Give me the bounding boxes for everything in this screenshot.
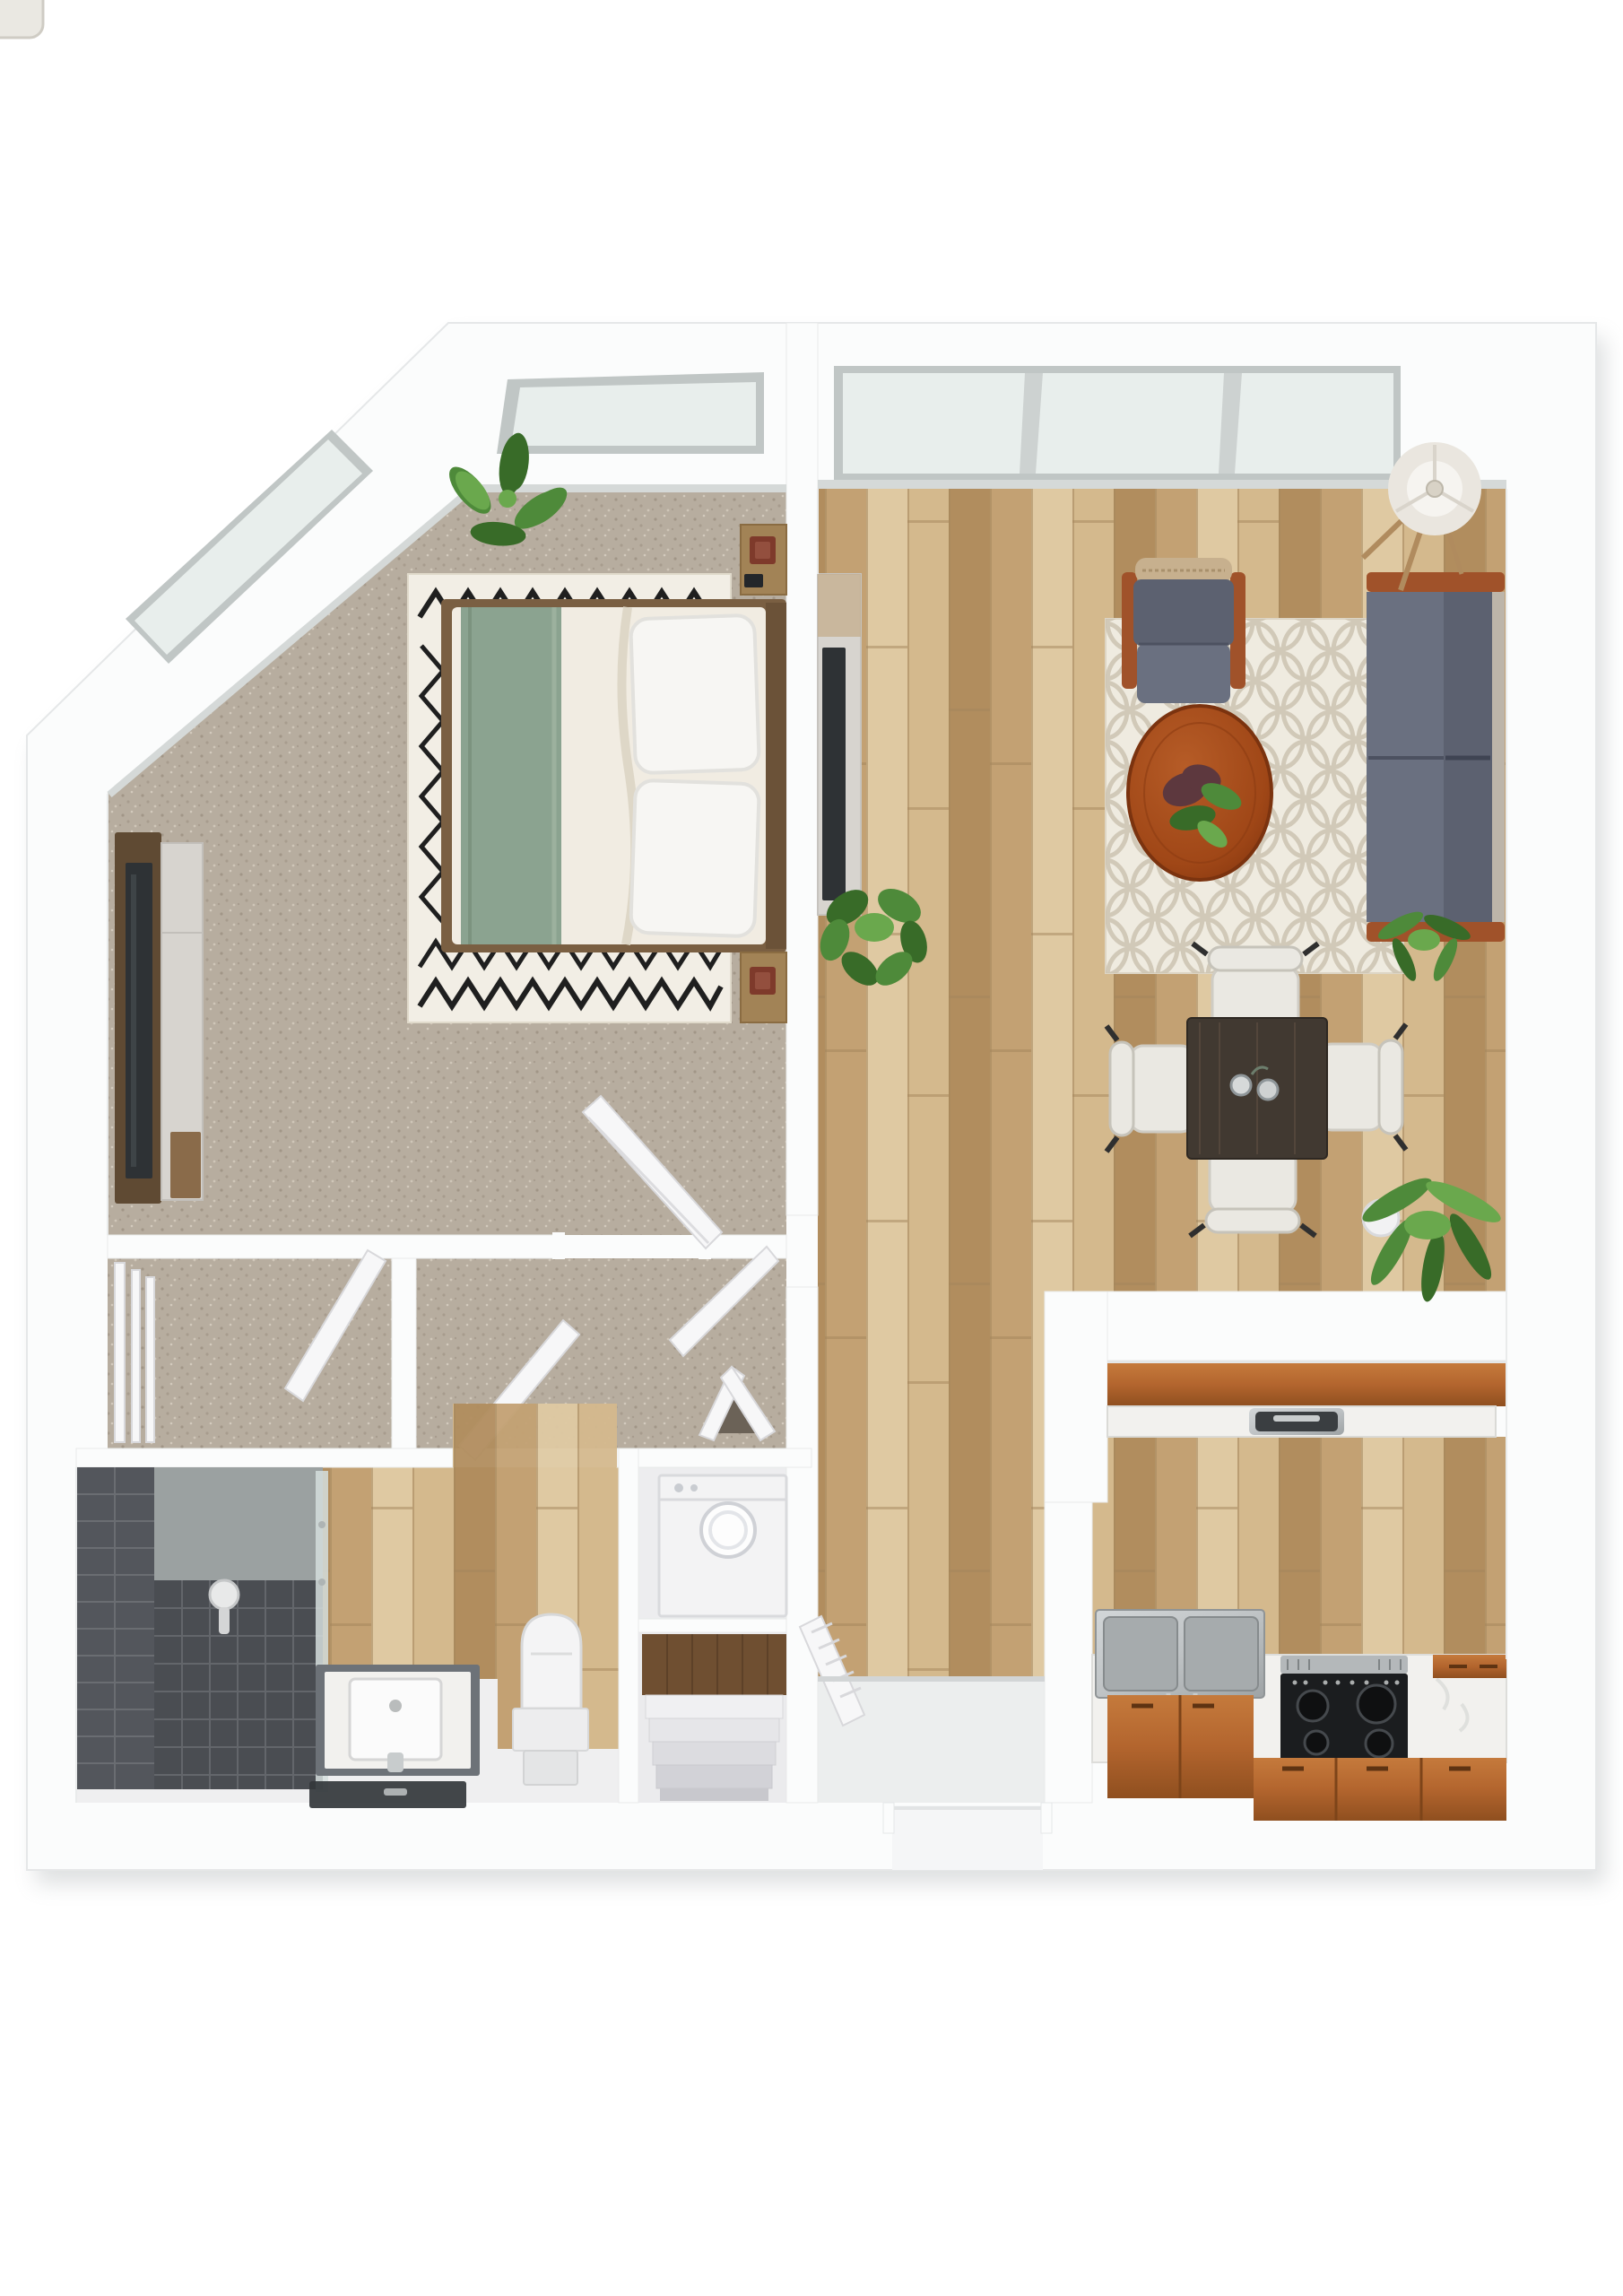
closet-door-frames: [115, 1263, 154, 1442]
bedroom-tv: [126, 863, 152, 1178]
vanity-sink: [350, 1679, 441, 1760]
vanity: [309, 1665, 480, 1808]
living-tv: [822, 648, 846, 900]
living-tv-console: [818, 574, 861, 915]
bedroom-tv-console: [115, 832, 203, 1204]
washer: [659, 1475, 786, 1616]
kitchen-peninsula: [1107, 1363, 1506, 1437]
entry-stairs: [642, 1634, 786, 1801]
bedroom-top-window: [497, 372, 764, 454]
shower: [76, 1467, 328, 1792]
armchair: [1122, 558, 1245, 703]
nightstand-bottom: [741, 952, 786, 1022]
toilet: [513, 1614, 588, 1785]
electric-range: [1280, 1656, 1408, 1762]
dining-chair-bottom: [1190, 1148, 1315, 1236]
floor-plan-stage: [0, 0, 1623, 2296]
peninsula-sink-inset: [1249, 1408, 1344, 1435]
floor-plan-rendering: [0, 0, 1623, 2296]
bathroom-threshold: [453, 1404, 617, 1467]
stainless-sink: [1096, 1610, 1264, 1709]
coffee-table: [1128, 706, 1271, 880]
vanity-faucet: [387, 1752, 404, 1772]
dining-chair-left: [1107, 1026, 1194, 1152]
phone-on-nightstand: [744, 574, 763, 587]
dining-chair-right: [1318, 1024, 1406, 1150]
bed: [441, 599, 786, 952]
front-door-opening: [883, 1803, 1052, 1870]
nightstand-top: [741, 525, 786, 595]
shower-fixture: [210, 1580, 239, 1609]
sofa: [1367, 572, 1505, 942]
